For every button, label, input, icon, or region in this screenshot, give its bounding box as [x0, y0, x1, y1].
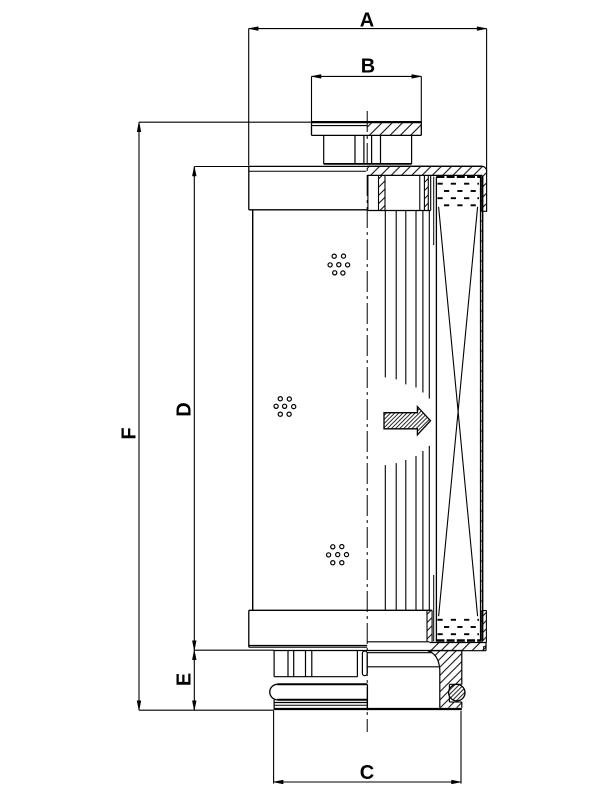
svg-text:D: D	[174, 402, 196, 416]
svg-text:C: C	[360, 762, 374, 784]
svg-text:E: E	[174, 673, 196, 686]
svg-text:F: F	[119, 427, 141, 439]
svg-text:B: B	[361, 55, 375, 77]
svg-text:A: A	[360, 10, 374, 32]
